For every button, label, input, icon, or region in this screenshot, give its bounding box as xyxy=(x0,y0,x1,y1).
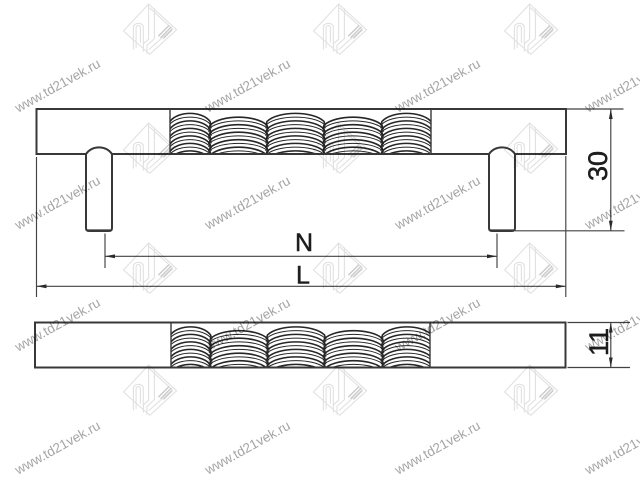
svg-text:www.td21vek.ru: www.td21vek.ru xyxy=(201,56,292,116)
svg-text:www.td21vek.ru: www.td21vek.ru xyxy=(11,418,102,478)
svg-text:www.td21vek.ru: www.td21vek.ru xyxy=(581,418,640,478)
svg-text:www.td21vek.ru: www.td21vek.ru xyxy=(201,173,292,233)
svg-text:www.td21vek.ru: www.td21vek.ru xyxy=(391,173,482,233)
svg-text:www.td21vek.ru: www.td21vek.ru xyxy=(11,56,102,116)
svg-text:www.td21vek.ru: www.td21vek.ru xyxy=(391,56,482,116)
svg-text:www.td21vek.ru: www.td21vek.ru xyxy=(11,173,102,233)
svg-text:www.td21vek.ru: www.td21vek.ru xyxy=(11,295,102,355)
svg-text:www.td21vek.ru: www.td21vek.ru xyxy=(201,295,292,355)
svg-text:www.td21vek.ru: www.td21vek.ru xyxy=(391,295,482,355)
svg-text:www.td21vek.ru: www.td21vek.ru xyxy=(581,173,640,233)
svg-text:www.td21vek.ru: www.td21vek.ru xyxy=(391,418,482,478)
svg-text:www.td21vek.ru: www.td21vek.ru xyxy=(581,56,640,116)
svg-text:www.td21vek.ru: www.td21vek.ru xyxy=(201,418,292,478)
svg-text:www.td21vek.ru: www.td21vek.ru xyxy=(581,295,640,355)
